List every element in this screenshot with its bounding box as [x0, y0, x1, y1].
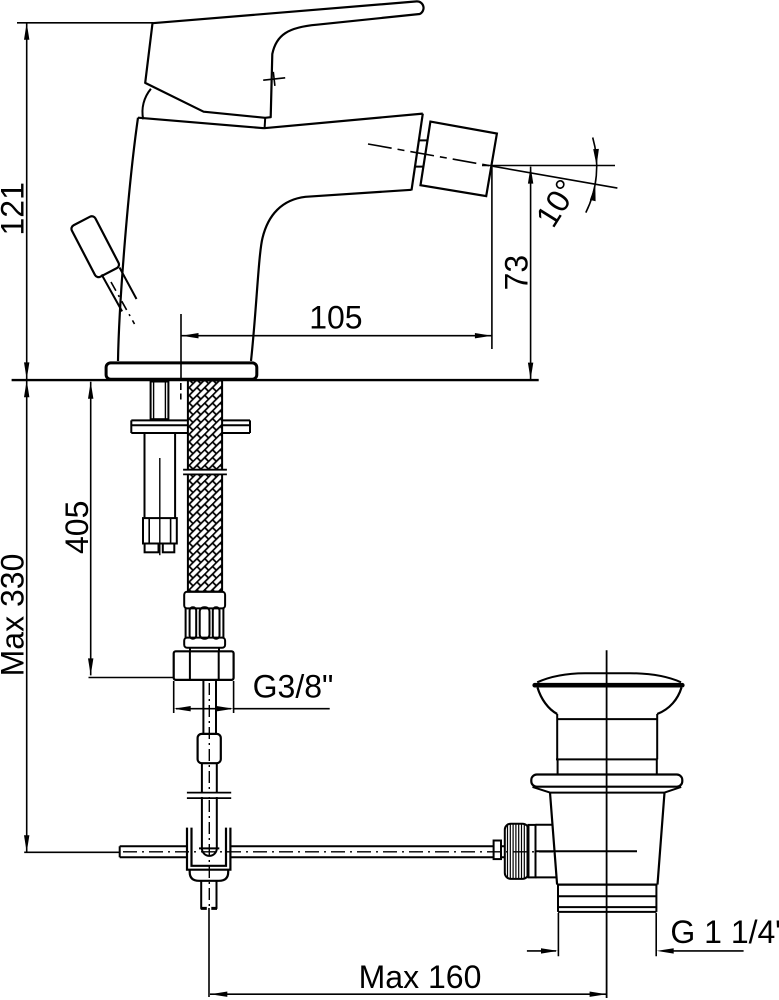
- svg-text:405: 405: [59, 501, 95, 554]
- svg-text:73: 73: [499, 255, 535, 291]
- svg-text:121: 121: [0, 182, 31, 235]
- svg-text:G 1 1/4": G 1 1/4": [670, 914, 779, 950]
- svg-text:G3/8": G3/8": [253, 668, 334, 704]
- svg-text:Max 330: Max 330: [0, 554, 31, 677]
- svg-text:Max 160: Max 160: [359, 959, 482, 995]
- svg-text:105: 105: [309, 299, 362, 335]
